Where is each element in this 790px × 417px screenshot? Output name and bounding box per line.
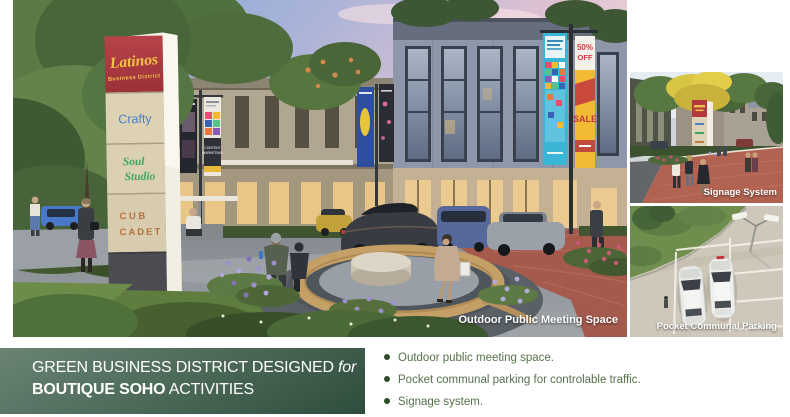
key-point-item: Outdoor public meeting space. <box>384 351 641 365</box>
key-point-item: Pocket communal parking for controlable … <box>384 373 641 387</box>
banner-promo-off: OFF <box>578 53 593 62</box>
banner-content-text-1: CONTENT <box>204 146 220 150</box>
banner-promo-sale: SALE <box>573 114 597 124</box>
parking-scene <box>630 206 783 337</box>
bullet-icon <box>384 354 390 360</box>
banner-promo-pct: 50% <box>577 43 593 52</box>
key-point-text: Outdoor public meeting space. <box>398 351 554 365</box>
pylon-tenant-cadet: CADET <box>119 227 162 239</box>
pylon-tenant-cub: CUB <box>119 211 147 222</box>
title-line-1: GREEN BUSINESS DISTRICT DESIGNED for <box>32 357 365 379</box>
main-image-caption: Outdoor Public Meeting Space <box>458 314 618 326</box>
presentation-slide: { "slide_title": { "line1": "GREEN BUSIN… <box>0 0 790 414</box>
signage-system-photo: Signage System <box>630 72 783 203</box>
bullet-icon <box>384 398 390 404</box>
main-render-photo: CONTENT MARKETING <box>13 0 627 337</box>
signage-caption: Signage System <box>704 187 777 198</box>
pylon-tenant-soul: Soul <box>123 156 146 168</box>
title-bar: GREEN BUSINESS DISTRICT DESIGNED for BOU… <box>0 348 365 414</box>
key-point-item: Signage system. <box>384 395 641 409</box>
title-line2-bold: BOUTIQUE SOHO <box>32 381 165 398</box>
pylon-tenant-studio: Studio <box>125 171 156 184</box>
banner-content-text-2: MARKETING <box>202 151 223 155</box>
bullet-icon <box>384 376 390 382</box>
title-line2-text: ACTIVITIES <box>165 381 254 398</box>
title-line1-italic: for <box>334 359 356 376</box>
key-point-text: Pocket communal parking for controlable … <box>398 373 641 387</box>
key-points-list: Outdoor public meeting space. Pocket com… <box>384 351 641 417</box>
main-render-scene: CONTENT MARKETING <box>13 0 627 337</box>
signage-scene <box>630 72 783 203</box>
parking-person <box>664 296 668 308</box>
key-point-text: Signage system. <box>398 395 483 409</box>
pocket-parking-photo: Pocket Communal Parking <box>630 206 783 337</box>
title-line-2: BOUTIQUE SOHO ACTIVITIES <box>32 379 365 401</box>
title-line1-text: GREEN BUSINESS DISTRICT DESIGNED <box>32 359 334 376</box>
parking-caption: Pocket Communal Parking <box>657 321 777 332</box>
pylon-tenant-crafty: Crafty <box>118 112 152 127</box>
